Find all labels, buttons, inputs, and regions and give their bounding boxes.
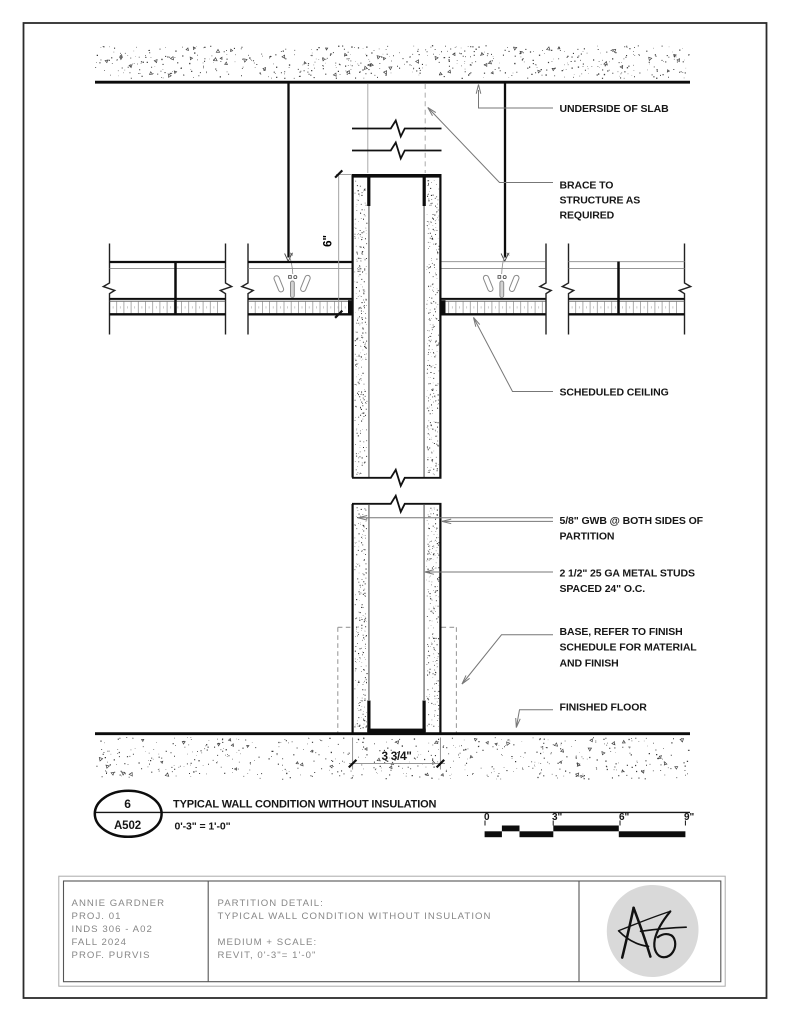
svg-text:FINISHED FLOOR: FINISHED FLOOR: [560, 702, 648, 714]
svg-text:A502: A502: [114, 820, 141, 832]
svg-text:0'-3" = 1'-0": 0'-3" = 1'-0": [175, 821, 231, 833]
svg-text:2 1/2" 25 GA METAL STUDS: 2 1/2" 25 GA METAL STUDS: [560, 568, 696, 580]
svg-text:BASE, REFER TO FINISH: BASE, REFER TO FINISH: [560, 626, 683, 638]
svg-text:6": 6": [619, 812, 629, 823]
svg-text:6": 6": [323, 235, 335, 247]
svg-text:6: 6: [124, 797, 131, 811]
svg-text:SPACED 24" O.C.: SPACED 24" O.C.: [560, 583, 646, 595]
svg-text:PROJ. 01: PROJ. 01: [72, 911, 122, 922]
svg-text:TYPICAL WALL CONDITION WITHOUT: TYPICAL WALL CONDITION WITHOUT INSULATIO…: [218, 911, 492, 922]
svg-text:AND FINISH: AND FINISH: [560, 658, 619, 670]
svg-text:MEDIUM + SCALE:: MEDIUM + SCALE:: [218, 937, 318, 948]
svg-text:PARTITION DETAIL:: PARTITION DETAIL:: [218, 898, 324, 909]
svg-text:SCHEDULED CEILING: SCHEDULED CEILING: [560, 387, 669, 399]
svg-text:FALL 2024: FALL 2024: [72, 937, 128, 948]
svg-text:ANNIE GARDNER: ANNIE GARDNER: [72, 898, 166, 909]
svg-text:PROF. PURVIS: PROF. PURVIS: [72, 950, 151, 961]
svg-text:5/8" GWB @ BOTH SIDES OF: 5/8" GWB @ BOTH SIDES OF: [560, 515, 704, 527]
svg-text:BRACE TO: BRACE TO: [560, 179, 614, 191]
svg-text:INDS 306 - A02: INDS 306 - A02: [72, 924, 153, 935]
svg-text:TYPICAL WALL CONDITION WITHOUT: TYPICAL WALL CONDITION WITHOUT INSULATIO…: [173, 799, 437, 811]
svg-text:3 3/4": 3 3/4": [381, 749, 411, 763]
svg-text:STRUCTURE AS: STRUCTURE AS: [560, 194, 641, 206]
svg-text:PARTITION: PARTITION: [560, 531, 615, 543]
svg-text:SCHEDULE FOR MATERIAL: SCHEDULE FOR MATERIAL: [560, 642, 698, 654]
svg-text:REVIT, 0'-3"= 1'-0": REVIT, 0'-3"= 1'-0": [218, 950, 317, 961]
svg-text:UNDERSIDE OF SLAB: UNDERSIDE OF SLAB: [560, 103, 670, 115]
svg-text:REQUIRED: REQUIRED: [560, 209, 615, 221]
